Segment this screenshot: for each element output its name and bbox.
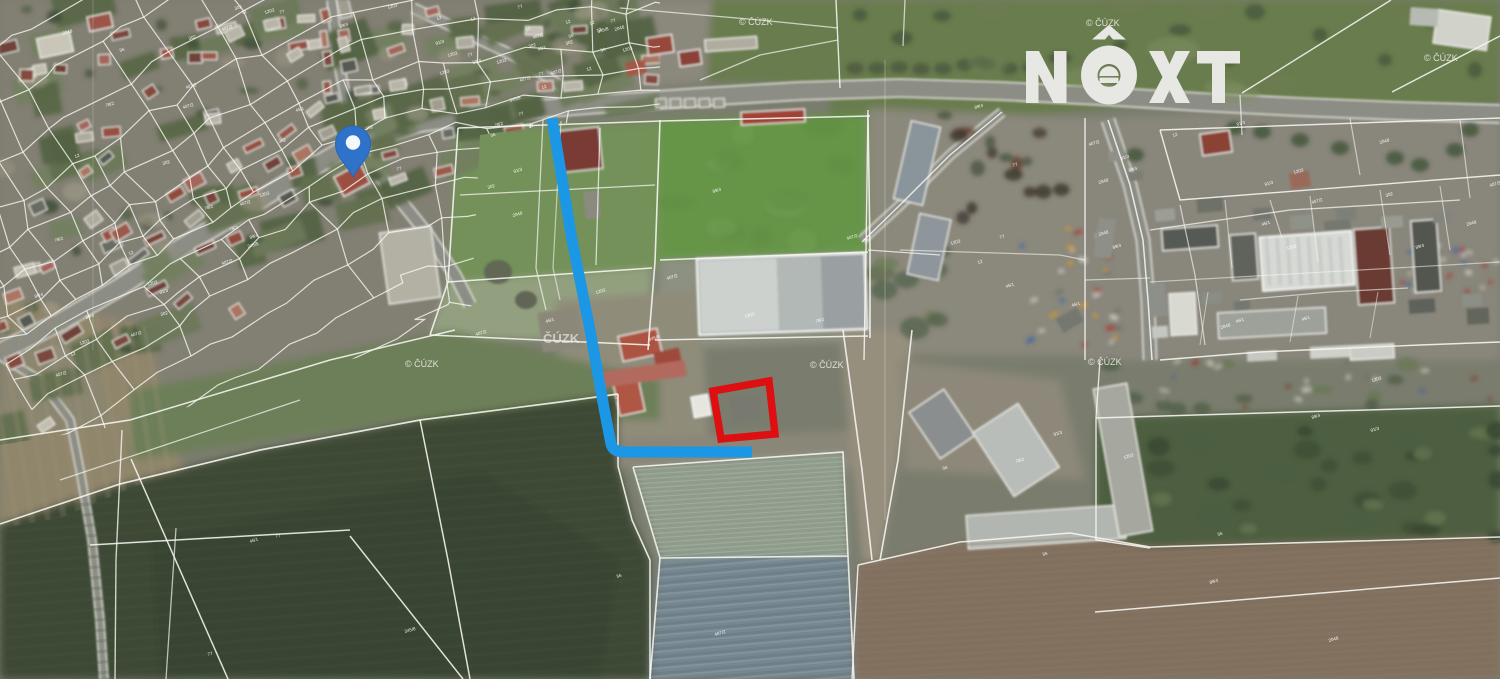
svg-text:© ČÚZK: © ČÚZK: [1424, 53, 1458, 63]
svg-text:© ČÚZK: © ČÚZK: [405, 359, 439, 369]
svg-text:© ČÚZK: © ČÚZK: [739, 17, 773, 27]
svg-text:ČÚZK: ČÚZK: [543, 331, 580, 346]
svg-text:© ČÚZK: © ČÚZK: [1088, 357, 1122, 367]
svg-text:© ČÚZK: © ČÚZK: [1086, 18, 1120, 28]
svg-text:© ČÚZK: © ČÚZK: [810, 360, 844, 370]
